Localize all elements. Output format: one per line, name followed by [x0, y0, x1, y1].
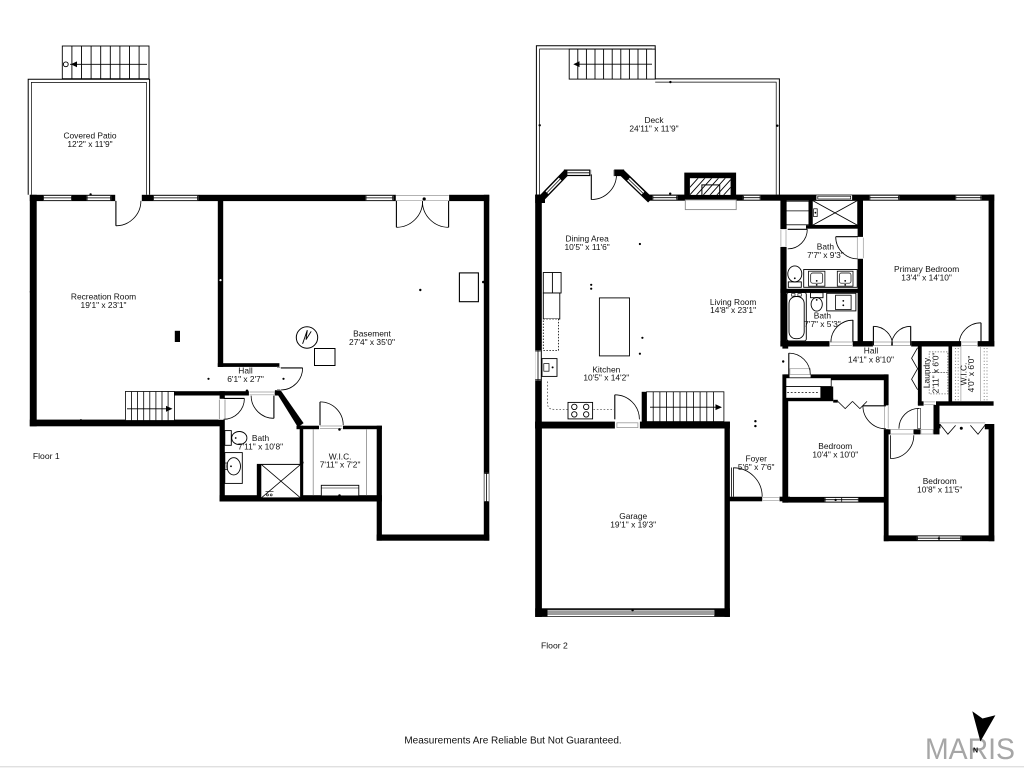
svg-text:12'2" x 11'9": 12'2" x 11'9" — [67, 139, 112, 149]
svg-text:7'11" x 7'2": 7'11" x 7'2" — [320, 459, 361, 469]
svg-text:Floor 2: Floor 2 — [541, 641, 568, 651]
svg-text:7'7" x 5'3": 7'7" x 5'3" — [804, 319, 841, 329]
svg-text:N: N — [973, 748, 978, 755]
svg-text:19'1" x 19'3": 19'1" x 19'3" — [610, 519, 656, 529]
svg-text:10'5" x 14'2": 10'5" x 14'2" — [583, 373, 629, 383]
svg-text:5'6" x 7'6": 5'6" x 7'6" — [738, 462, 775, 472]
svg-text:24'11" x 11'9": 24'11" x 11'9" — [629, 124, 678, 134]
svg-text:13'4" x 14'10": 13'4" x 14'10" — [901, 273, 952, 283]
svg-text:6'1" x 2'7": 6'1" x 2'7" — [227, 374, 264, 384]
svg-text:10'8" x 11'5": 10'8" x 11'5" — [917, 484, 962, 494]
svg-text:2'11" x 6'0": 2'11" x 6'0" — [930, 353, 940, 394]
svg-text:7'7" x 9'3": 7'7" x 9'3" — [807, 250, 844, 260]
svg-text:MARIS: MARIS — [925, 733, 1015, 766]
svg-text:14'8" x 23'1": 14'8" x 23'1" — [710, 305, 756, 315]
svg-text:14'1" x 8'10": 14'1" x 8'10" — [848, 354, 894, 364]
svg-text:27'4" x 35'0": 27'4" x 35'0" — [349, 337, 395, 347]
svg-text:19'1" x 23'1": 19'1" x 23'1" — [81, 300, 127, 310]
svg-text:Floor 1: Floor 1 — [33, 451, 60, 461]
svg-text:10'5" x 11'6": 10'5" x 11'6" — [564, 242, 609, 252]
svg-text:7'11" x 10'8": 7'11" x 10'8" — [238, 441, 283, 451]
svg-text:Measurements Are Reliable But: Measurements Are Reliable But Not Guaran… — [404, 736, 621, 747]
svg-text:10'4" x 10'0": 10'4" x 10'0" — [812, 449, 858, 459]
svg-text:4'0" x 6'0": 4'0" x 6'0" — [966, 356, 976, 393]
